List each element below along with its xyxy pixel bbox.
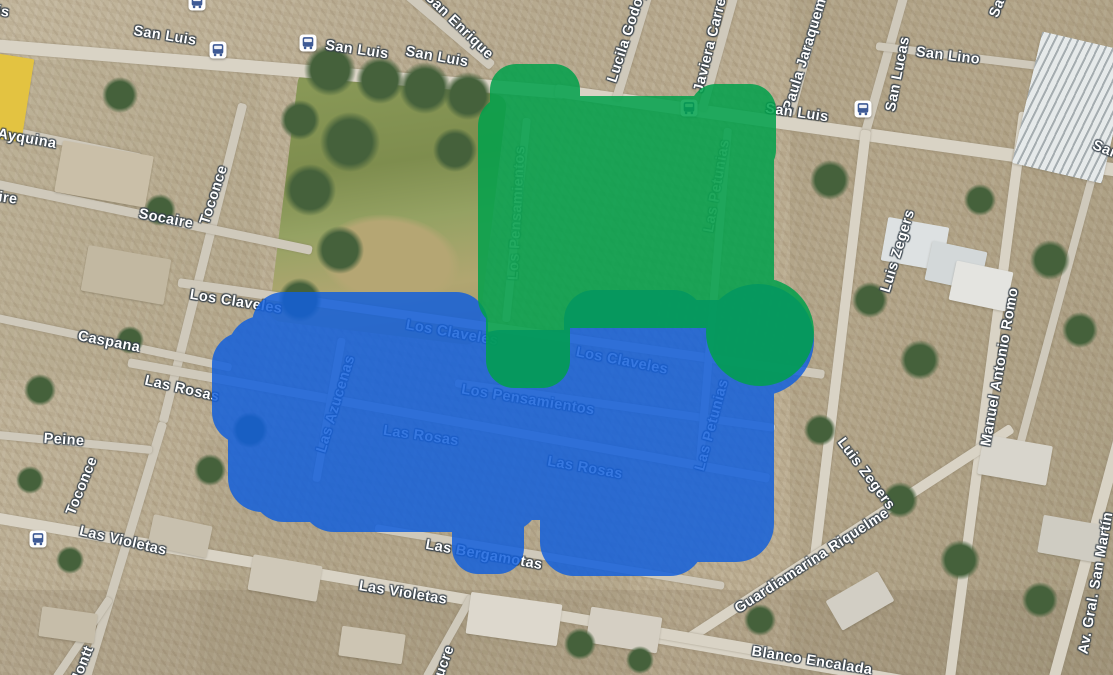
tree-cluster [810, 160, 850, 200]
tree-cluster [56, 546, 84, 574]
tree-cluster [399, 62, 451, 114]
tree-cluster [964, 184, 996, 216]
building-roof [586, 607, 663, 654]
bus-stop-icon[interactable] [681, 100, 698, 117]
tree-cluster [564, 628, 596, 660]
bus-stop-icon[interactable] [189, 0, 206, 11]
building-roof [1012, 31, 1113, 183]
tree-cluster [940, 540, 980, 580]
tree-cluster [232, 412, 268, 448]
tree-cluster [1030, 240, 1070, 280]
tree-cluster [444, 72, 492, 120]
road-label: Paula Jaraquemada [780, 0, 837, 113]
building-roof [247, 554, 322, 602]
road-label: Las Rosas [382, 423, 460, 449]
road-label: San Luis [0, 0, 11, 21]
road-label: San [986, 0, 1011, 20]
tree-cluster [1062, 312, 1098, 348]
tree-cluster [626, 646, 654, 674]
road-label: Las Rosas [546, 454, 624, 483]
road-label: Los Pensamientos [460, 382, 595, 419]
road-label: San Lino [915, 44, 981, 68]
tree-cluster [284, 164, 336, 216]
road [374, 524, 724, 590]
satellite-map[interactable]: San LuisSan LuisSan LuisSan LuisSan Enri… [0, 0, 1113, 675]
road-label: Los Pensamientos [505, 145, 528, 280]
road [1016, 147, 1104, 446]
tree-cluster [356, 56, 404, 104]
building-roof [38, 606, 98, 644]
tree-cluster [278, 278, 322, 322]
tree-cluster [320, 112, 380, 172]
tree-cluster [433, 128, 477, 172]
road-label: Luis Zegers [834, 435, 898, 513]
road [177, 278, 824, 379]
tree-cluster [194, 454, 226, 486]
road-label: San Luis [132, 23, 197, 49]
bus-stop-icon[interactable] [855, 101, 872, 118]
bus-stop-icon[interactable] [300, 35, 317, 52]
tree-cluster [900, 340, 940, 380]
building-roof [466, 592, 563, 646]
building-roof [338, 626, 406, 665]
bus-stop-icon[interactable] [30, 531, 47, 548]
tree-cluster [1022, 582, 1058, 618]
tree-cluster [16, 466, 44, 494]
tree-cluster [316, 226, 364, 274]
road-label: Peine [43, 431, 85, 450]
building-roof [826, 571, 895, 630]
bus-stop-icon[interactable] [210, 42, 227, 59]
tree-cluster [804, 414, 836, 446]
tree-cluster [102, 77, 138, 113]
building-roof [81, 245, 172, 305]
road-label: Toconce [63, 455, 101, 518]
road-label: Toconce [197, 163, 231, 226]
tree-cluster [280, 100, 320, 140]
tree-cluster [24, 374, 56, 406]
road-label: Las Petunias [701, 138, 733, 234]
